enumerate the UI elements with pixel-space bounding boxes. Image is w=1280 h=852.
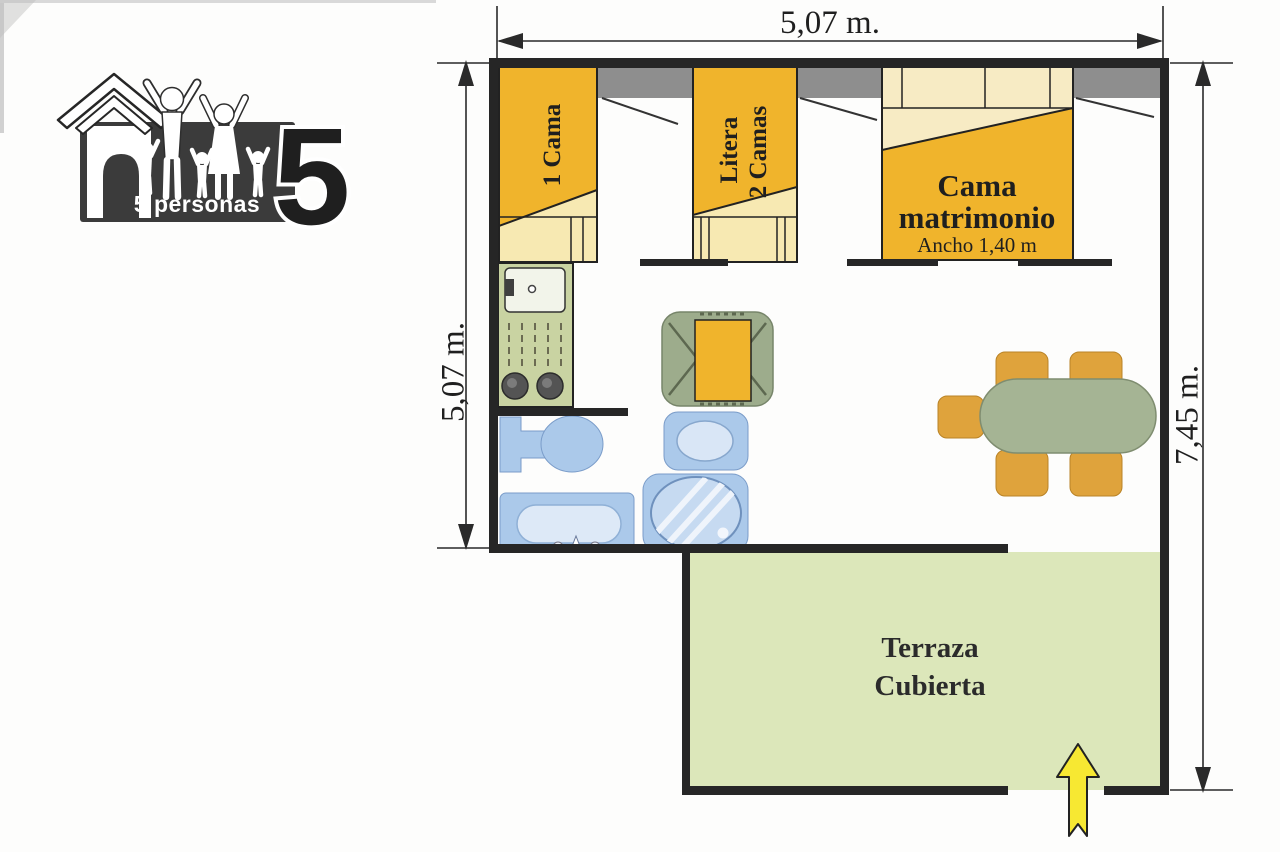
dimension-right-label: 7,45 m. bbox=[1170, 365, 1206, 465]
kitchen-unit bbox=[498, 263, 573, 407]
arrowhead-left-icon bbox=[497, 33, 523, 49]
wall-partition-stub bbox=[640, 259, 728, 266]
bed-double-label-line2: matrimonio bbox=[899, 200, 1056, 235]
wall-terrace-left bbox=[682, 544, 690, 795]
bathroom bbox=[500, 416, 634, 552]
badge-number: 5 bbox=[274, 100, 351, 254]
toilet-bowl bbox=[541, 416, 603, 472]
bed-single-label: 1 Cama bbox=[539, 103, 566, 186]
wall-terrace-bottom-left bbox=[682, 786, 1008, 795]
toilet-tank bbox=[500, 417, 547, 472]
dimension-top-label: 5,07 m. bbox=[780, 5, 880, 41]
dining-table bbox=[980, 379, 1156, 453]
wall-bathroom bbox=[489, 408, 628, 416]
dimension-left: 5,07 m. bbox=[436, 60, 489, 550]
floorplan-drawing: 5 personas 5 Terraza Cubierta 1 Cama Lit… bbox=[0, 0, 1280, 852]
arrowhead-right-icon bbox=[1137, 33, 1163, 49]
terrace-label-line2: Cubierta bbox=[874, 670, 986, 702]
dining-chair bbox=[938, 396, 984, 438]
washbasin bbox=[664, 412, 748, 470]
arrowhead-down-icon bbox=[458, 524, 474, 550]
dining-set bbox=[938, 352, 1156, 496]
dining-chair bbox=[1070, 450, 1122, 496]
wall-right bbox=[1160, 58, 1169, 795]
bed-double: Cama matrimonio Ancho 1,40 m bbox=[882, 67, 1073, 260]
armchair-cushion bbox=[695, 320, 751, 401]
sink-drain-icon bbox=[529, 286, 536, 293]
armchair bbox=[662, 312, 773, 406]
dimension-right: 7,45 m. bbox=[1170, 60, 1233, 793]
terrace: Terraza Cubierta bbox=[690, 552, 1160, 790]
bed-bunk: Litera 2 Camas bbox=[693, 67, 797, 262]
dining-chair bbox=[996, 450, 1048, 496]
bed-double-width-note: Ancho 1,40 m bbox=[917, 233, 1037, 257]
bed-double-label-line1: Cama bbox=[937, 168, 1017, 203]
wall-terrace-bottom-right bbox=[1104, 786, 1168, 795]
arrowhead-down-icon bbox=[1195, 767, 1211, 793]
arrowhead-up-icon bbox=[1195, 60, 1211, 86]
dimension-left-label: 5,07 m. bbox=[436, 322, 472, 422]
washbasin-bowl bbox=[677, 421, 733, 461]
window-swing-line bbox=[1076, 98, 1154, 117]
bed-bunk-label-line2: 2 Camas bbox=[745, 106, 772, 199]
arrowhead-up-icon bbox=[458, 60, 474, 86]
floorplan-page: 5 personas 5 Terraza Cubierta 1 Cama Lit… bbox=[0, 0, 1280, 852]
window-swing-line bbox=[800, 98, 877, 120]
bathtub-basin bbox=[517, 505, 621, 543]
terrace-label-line1: Terraza bbox=[881, 632, 979, 664]
wall-left bbox=[489, 58, 498, 552]
wall-partition-stub bbox=[1018, 259, 1112, 266]
bed-single: 1 Cama bbox=[499, 67, 597, 262]
sink-faucet-icon bbox=[505, 279, 514, 296]
window-swing-line bbox=[602, 98, 678, 124]
bed-bunk-label-line1: Litera bbox=[716, 116, 743, 183]
wall-partition-stub bbox=[847, 259, 938, 266]
wall-main-bottom bbox=[489, 544, 1008, 553]
wall-top bbox=[489, 58, 1168, 68]
badge-caption: 5 personas bbox=[134, 191, 260, 217]
shower-drain-icon bbox=[718, 528, 729, 539]
shower bbox=[643, 474, 748, 552]
dimension-top: 5,07 m. bbox=[497, 5, 1163, 58]
logo-5-personas: 5 personas 5 bbox=[58, 74, 350, 254]
